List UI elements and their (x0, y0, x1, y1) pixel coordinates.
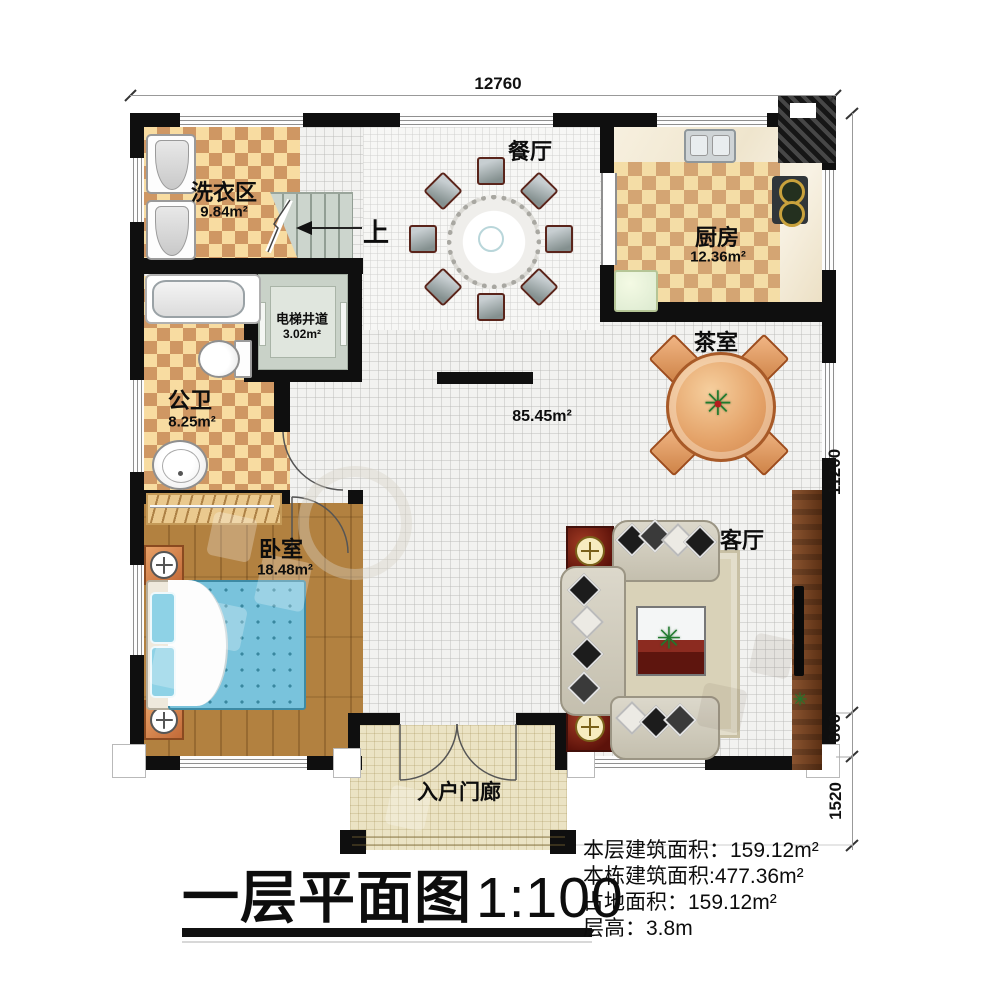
watermark-glyph (196, 600, 248, 652)
watermark-glyph (206, 511, 258, 563)
room-label-bedroom: 卧室 (259, 532, 303, 564)
room-area-elevator: 3.02m² (283, 327, 321, 341)
room-area-laundry: 9.84m² (200, 204, 248, 221)
dimension-line-right (852, 113, 853, 850)
stat-label: 本栋建筑面积: (583, 865, 715, 888)
dimension-right-lower: 800 (825, 710, 845, 746)
floor-plan: ✳ ✳ ✳ (0, 0, 1000, 990)
stat-value: 477.36m² (715, 865, 804, 888)
stat-label: 占地面积： (583, 891, 688, 914)
room-label-kitchen: 厨房 (695, 220, 739, 252)
stat-building-area: 本栋建筑面积:477.36m² (583, 864, 883, 890)
dimension-line-top (130, 95, 836, 96)
entry-door-arc (400, 724, 457, 780)
watermark-ring (298, 466, 412, 580)
room-area-kitchen: 12.36m² (690, 249, 746, 266)
stat-value: 159.12m² (688, 891, 777, 914)
title-underline (182, 928, 592, 937)
stat-label: 本层建筑面积： (583, 839, 730, 862)
stair-arrowhead-icon (296, 221, 312, 235)
area-summary: 本层建筑面积：159.12m² 本栋建筑面积:477.36m² 占地面积：159… (583, 838, 883, 942)
title-underline-shadow (182, 941, 592, 943)
plan-title: 一层平面图1:100 (182, 852, 624, 934)
stairs-direction-label: 上 (363, 213, 389, 250)
stat-floor-area: 本层建筑面积：159.12m² (583, 838, 883, 864)
room-area-hall: 85.45m² (512, 408, 572, 426)
dimension-right-height: 11200 (825, 442, 845, 502)
stat-value: 159.12m² (730, 839, 819, 862)
room-label-living: 客厅 (720, 523, 764, 555)
plan-title-text: 一层平面图 (182, 866, 472, 930)
room-label-laundry: 洗衣区 (191, 175, 257, 207)
room-label-porch: 入户门廊 (417, 776, 501, 806)
dimension-right-porch: 1520 (826, 778, 846, 824)
room-area-bathroom: 8.25m² (168, 414, 216, 431)
stat-floor-height: 层高：3.8m (583, 916, 883, 942)
watermark-glyph (696, 682, 748, 734)
stat-label: 层高： (583, 917, 646, 940)
watermark-glyph (148, 644, 195, 691)
watermark-glyph (748, 632, 795, 679)
room-label-bathroom: 公卫 (168, 383, 212, 415)
dimension-top-width: 12760 (448, 74, 548, 94)
stat-value: 3.8m (646, 917, 693, 940)
room-area-bedroom: 18.48m² (257, 562, 313, 579)
entry-door-arc (457, 724, 516, 780)
stat-footprint-area: 占地面积：159.12m² (583, 890, 883, 916)
room-label-dining: 餐厅 (508, 134, 552, 166)
room-label-elevator: 电梯井道 (276, 309, 328, 328)
room-label-tea: 茶室 (694, 325, 738, 357)
